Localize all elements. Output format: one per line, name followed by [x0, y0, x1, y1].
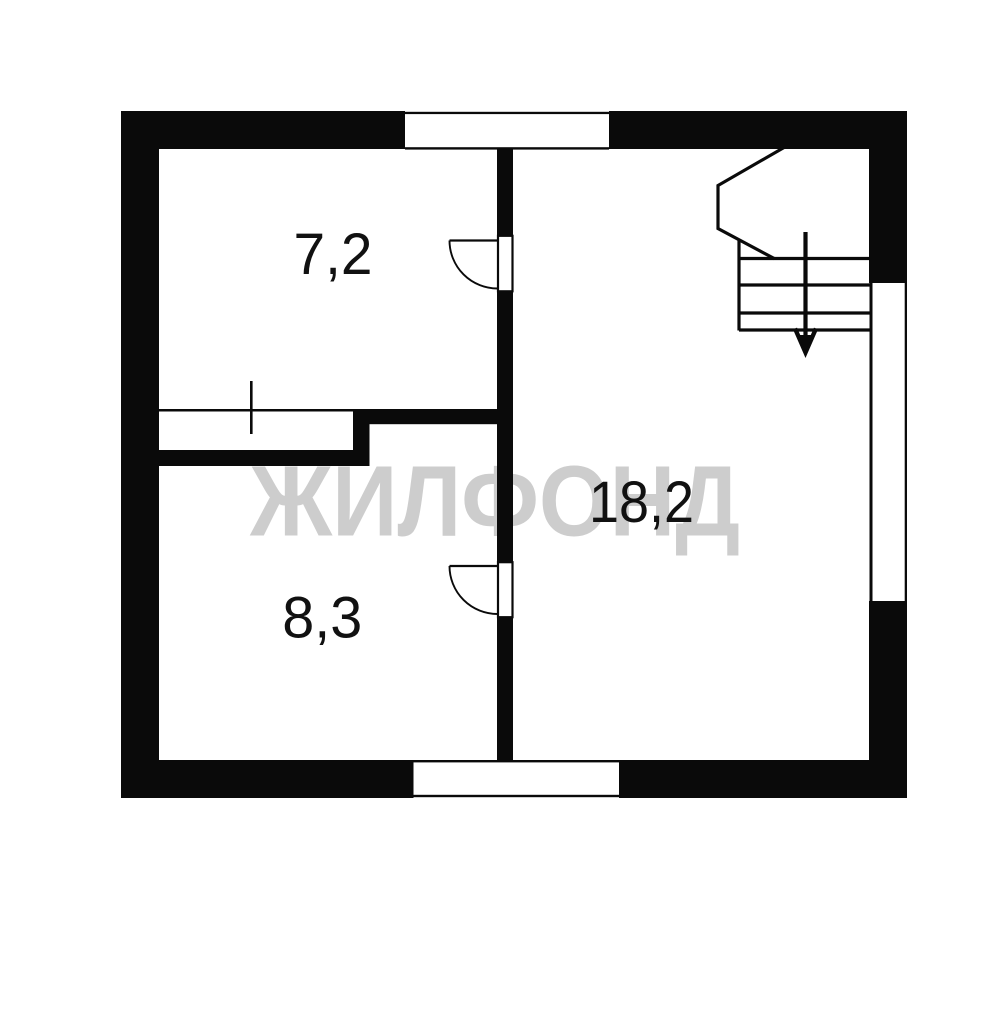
svg-text:8,3: 8,3: [282, 586, 362, 651]
svg-text:7,2: 7,2: [294, 222, 373, 287]
svg-text:18,2: 18,2: [589, 470, 694, 535]
